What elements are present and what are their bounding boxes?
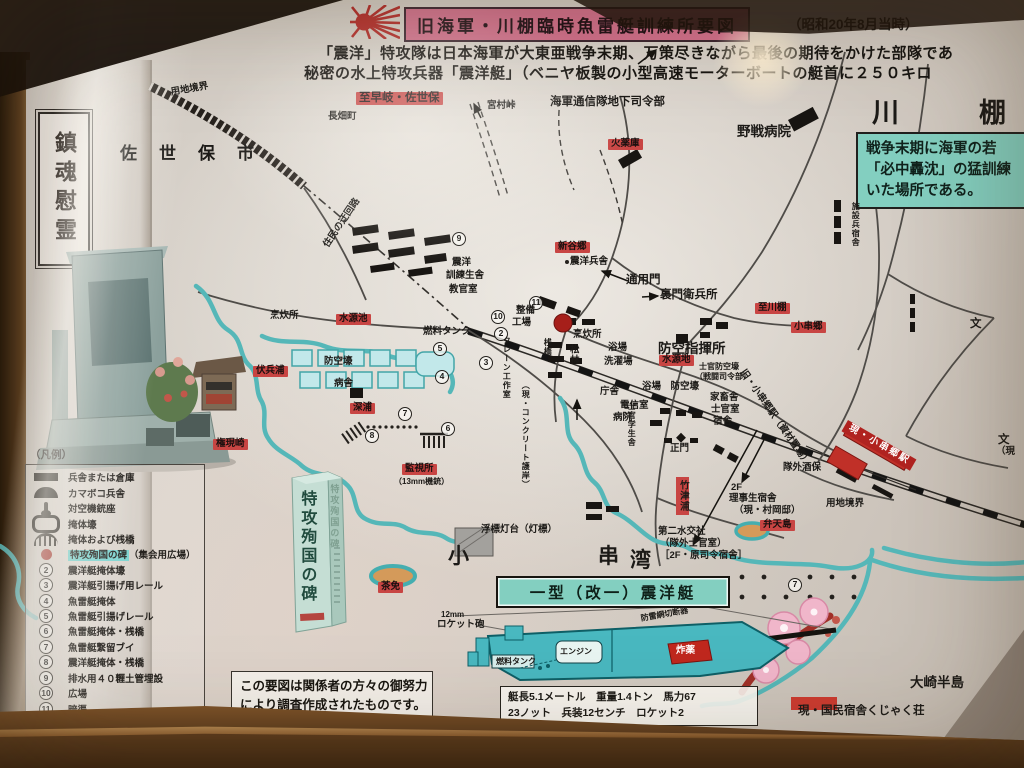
legend-label: 広場	[68, 686, 87, 700]
legend-row: 兵舎または倉庫	[32, 470, 198, 484]
legend-row: 9排水用４０糎土管埋設	[32, 671, 198, 685]
map-label: 庁舎	[600, 387, 619, 398]
legend-ic-bunker	[32, 515, 60, 533]
legend-number-icon: 4	[39, 594, 53, 608]
map-label: 大崎半島	[910, 675, 964, 691]
map-label: 野戦病院	[737, 124, 791, 140]
map-label: 10	[491, 310, 505, 324]
legend-row: 11暗渠	[32, 702, 198, 716]
map-label: （隊外士官室）	[660, 539, 727, 550]
legend-number-icon: 11	[39, 702, 53, 716]
map-label: 烹炊所	[573, 330, 602, 341]
map-label: （13mm機銃）	[394, 477, 449, 486]
map-label: 文	[970, 318, 982, 331]
map-label: 至川棚	[755, 303, 790, 314]
legend-row: 対空機銃座	[32, 501, 198, 515]
intro-line-1: 「震洋」特攻隊は日本海軍が大東亜戦争末期、万策尽きながら最後の期待をかけた部隊で…	[318, 42, 953, 63]
map-label: 燃料タンク	[423, 327, 471, 338]
map-label: 特攻殉国の碑	[297, 490, 315, 604]
legend-row: 4魚雷艇掩体	[32, 594, 198, 608]
map-label: （現・村岡邸）	[734, 506, 801, 517]
legend-row: 3震洋艇引揚げ用レール	[32, 578, 198, 592]
map-label: 3	[479, 356, 493, 370]
map-label: 8	[365, 429, 379, 443]
legend-number-icon: 2	[39, 563, 53, 577]
map-label: 川棚	[872, 98, 1024, 129]
legend-label: 排水用４０糎土管埋設	[68, 671, 163, 685]
map-label: 防空壕	[324, 357, 353, 368]
map-label: ロケット砲	[437, 620, 485, 631]
info-line: いた場所である。	[866, 181, 1024, 202]
map-label: （現・コンクリート護岸）	[521, 381, 530, 489]
map-label: エンジン	[560, 647, 592, 656]
legend-row: 7魚雷艇繋留ブイ	[32, 640, 198, 654]
map-label: 士官室	[711, 405, 740, 416]
note-line: この要図は関係者の方々の御努力	[240, 677, 424, 696]
legend-label: 対空機銃座	[68, 501, 116, 515]
map-label: 士官防空壕	[699, 362, 739, 371]
map-label: 松林	[567, 344, 578, 365]
map-label: （現	[996, 447, 1015, 458]
map-label: 宮村峠	[487, 101, 516, 112]
map-label: 桟橋	[543, 338, 552, 356]
boat-type-title: 一型（改一）震洋艇	[496, 576, 730, 608]
legend-label: カマボコ兵舎	[68, 486, 125, 500]
legend-label: 震洋艇掩体壕	[68, 563, 125, 577]
map-label: 宿舎	[713, 417, 732, 428]
map-label: ［2F・原司令宿舎］	[660, 551, 747, 562]
note-line: により調査作成されたものです。	[240, 696, 424, 715]
spec-line: 艇長5.1メートル 重量1.4トン 馬力67	[508, 690, 750, 706]
map-label: 6	[441, 422, 455, 436]
legend-label: 特攻殉国の碑（集会用広場）	[68, 547, 196, 561]
legend-label: 暗渠	[68, 702, 87, 716]
legend-label: 魚雷艇繋留ブイ	[68, 640, 135, 654]
map-label: 9	[452, 232, 466, 246]
spec-line: 23ノット 兵装12センチ ロケット2	[508, 706, 750, 722]
map-label: 小	[448, 545, 469, 569]
map-label: 湾	[630, 549, 651, 573]
map-date-note: （昭和20年8月当時）	[788, 13, 919, 33]
map-label: 浮標灯台（灯標）	[481, 525, 557, 536]
signboard-photo: 鎮魂慰霊	[0, 0, 1024, 768]
map-label: 震洋	[452, 258, 471, 269]
info-line: 戦争末期に海軍の若	[866, 139, 1024, 160]
map-label: 至早岐・佐世保	[356, 92, 443, 105]
legend-row: 5魚雷艇引揚げレール	[32, 609, 198, 623]
map-label: 監視所	[402, 464, 437, 475]
map-label: 小串郷	[791, 322, 826, 333]
map-label: 5	[433, 342, 447, 356]
legend-label: 震洋艇掩体・桟橋	[68, 655, 144, 669]
legend-row: カマボコ兵舎	[32, 486, 198, 500]
legend-label: 震洋艇引揚げ用レール	[68, 578, 163, 592]
map-label: 用地境界	[826, 499, 864, 510]
map-label: 裏門衛兵所	[660, 289, 718, 302]
legend-label: 魚雷艇掩体	[68, 594, 116, 608]
map-label: 震洋兵舎	[570, 257, 608, 268]
legend-row: 8震洋艇掩体・桟橋	[32, 655, 198, 669]
legend-row: 10広場	[32, 686, 198, 700]
legend-ic-gun	[44, 502, 48, 515]
map-label: 洗濯場	[604, 357, 633, 368]
map-label: 現・国民宿舎くじゃく荘	[798, 705, 925, 718]
map-label: 特攻殉国の碑	[329, 484, 339, 550]
map-board: 鎮魂慰霊	[0, 0, 1024, 768]
legend-label: 兵舎または倉庫	[68, 470, 135, 484]
map-label: 理事生宿舎	[729, 494, 777, 505]
credit-note-box: この要図は関係者の方々の御努力 により調査作成されたものです。	[231, 671, 433, 721]
rising-sun-icon	[350, 5, 400, 39]
legend-number-icon: 10	[39, 686, 53, 700]
legend-ic-pier	[34, 533, 58, 546]
map-label: 士官学生舎	[627, 402, 636, 447]
legend-row: 特攻殉国の碑（集会用広場）	[32, 547, 198, 561]
map-label: 通用門	[626, 274, 661, 287]
map-label: 浴場 防空壕	[642, 382, 699, 393]
legend-row: 2震洋艇掩体壕	[32, 563, 198, 577]
legend-number-icon: 9	[39, 671, 53, 685]
map-label: 竹津浦	[676, 477, 689, 515]
legend-ic-reddot	[41, 549, 52, 560]
map-label: 水源地	[659, 355, 694, 366]
legend-row: 掩体および桟橋	[32, 532, 198, 546]
legend-row: 掩体壕	[32, 517, 198, 531]
map-label: 7	[788, 578, 802, 592]
map-label: 訓練生舎	[446, 271, 484, 282]
history-info-box: 戦争末期に海軍の若 「必中轟沈」の猛訓練 いた場所である。	[856, 132, 1024, 209]
map-title: 旧海軍・川棚臨時魚雷艇訓練所要図	[404, 7, 750, 42]
legend-label: 掩体壕	[68, 517, 97, 531]
map-label: 権現崎	[213, 439, 248, 450]
map-label: 施設兵宿舎	[851, 202, 860, 247]
info-line: 「必中轟沈」の猛訓練	[866, 160, 1024, 181]
map-label: 新谷郷	[555, 242, 590, 253]
map-label: 浴場	[608, 343, 627, 354]
map-label: 7	[398, 407, 412, 421]
legend-label: 魚雷艇掩体・桟橋	[68, 624, 144, 638]
legend-number-icon: 6	[39, 624, 53, 638]
legend-title: （凡例）	[30, 447, 72, 462]
map-label: 正門	[670, 444, 689, 455]
legend-number-icon: 7	[39, 640, 53, 654]
map-label: 海軍通信隊地下司令部	[550, 96, 665, 109]
intro-line-2: 秘密の水上特攻兵器「震洋艇」（ベニヤ板製の小型高速モーターボートの艇首に２５０キ…	[304, 62, 932, 83]
map-label: 長畑町	[328, 112, 357, 123]
map-label: 烹炊所	[270, 311, 299, 322]
map-label: 串	[598, 545, 619, 569]
map-label: 炸薬	[676, 646, 695, 657]
legend-label: 掩体および桟橋	[68, 532, 135, 546]
map-label: クレーン工作室	[502, 336, 511, 399]
map-label: 4	[435, 370, 449, 384]
map-label: 火薬庫	[608, 139, 643, 150]
legend-ic-arc	[34, 487, 58, 498]
map-label: 12mm	[441, 610, 464, 619]
map-label: 工場	[512, 318, 531, 329]
map-label: 弁天島	[760, 520, 795, 531]
map-label: 水源池	[336, 314, 371, 325]
map-label: 家畜舎	[710, 393, 739, 404]
map-label: 燃料タンク	[496, 657, 536, 666]
legend-ic-bar	[34, 473, 58, 481]
legend-box: 兵舎または倉庫カマボコ兵舎対空機銃座掩体壕掩体および桟橋特攻殉国の碑（集会用広場…	[25, 464, 205, 722]
legend-label: 魚雷艇引揚げレール	[68, 609, 154, 623]
map-label: 整備	[516, 306, 535, 317]
map-label: 佐世保市	[120, 144, 276, 164]
map-label: 茶免	[378, 582, 403, 593]
legend-number-icon: 5	[39, 609, 53, 623]
map-label: 教官室	[449, 285, 478, 296]
map-label: 深浦	[350, 403, 375, 414]
legend-number-icon: 3	[39, 578, 53, 592]
map-label: 病舎	[334, 379, 353, 390]
legend-number-icon: 8	[39, 655, 53, 669]
boat-spec-box: 艇長5.1メートル 重量1.4トン 馬力67 23ノット 兵装12センチ ロケッ…	[500, 686, 758, 726]
legend-row: 6魚雷艇掩体・桟橋	[32, 624, 198, 638]
map-label: 第二水交社	[658, 527, 706, 538]
map-label: 伏兵浦	[253, 366, 288, 377]
